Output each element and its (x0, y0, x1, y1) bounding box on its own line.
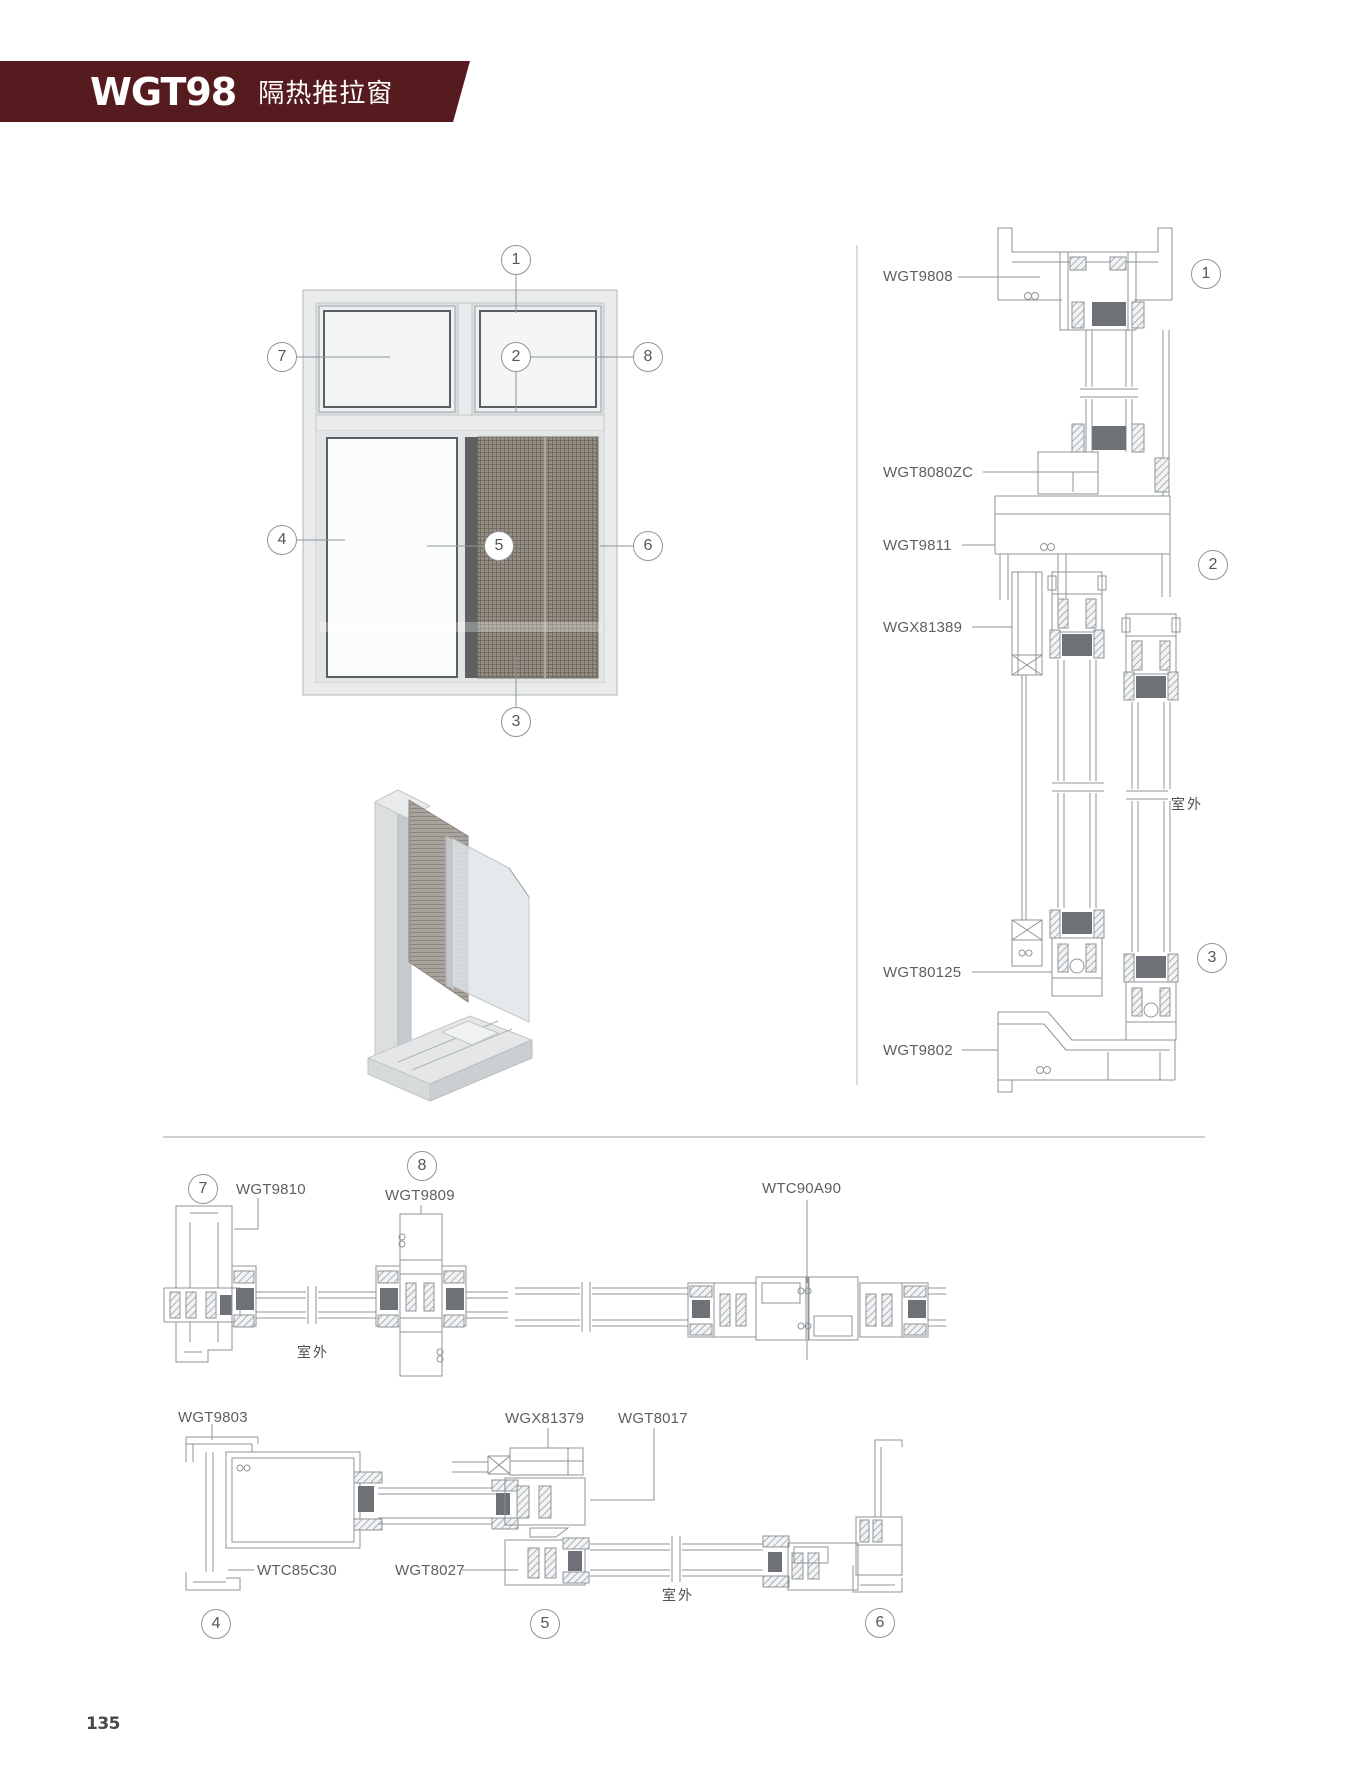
part-label-wgt8080zc: WGT8080ZC (883, 464, 973, 482)
elevation-callout-7: 7 (267, 342, 297, 372)
window-elevation (297, 275, 633, 707)
outdoor-label-row2: 室外 (662, 1587, 694, 1603)
technical-drawing (0, 0, 1359, 1770)
profile-3d-render (368, 790, 532, 1101)
row1-left-section (164, 1198, 508, 1376)
vertical-callout-3: 3 (1197, 943, 1227, 973)
part-label-wgt8027: WGT8027 (395, 1562, 465, 1580)
outdoor-label-row1: 室外 (297, 1344, 329, 1360)
part-label-wtc85c30: WTC85C30 (257, 1562, 337, 1580)
elevation-callout-1: 1 (501, 245, 531, 275)
part-label-wgt80125: WGT80125 (883, 964, 961, 982)
part-label-wgt9802: WGT9802 (883, 1042, 953, 1060)
elevation-callout-8: 8 (633, 342, 663, 372)
row1-callout-7: 7 (188, 1174, 218, 1204)
part-label-wgx81389: WGX81389 (883, 619, 962, 637)
outdoor-label-vertical: 室外 (1171, 796, 1203, 812)
row2-callout-4: 4 (201, 1609, 231, 1639)
part-label-wgt9810: WGT9810 (236, 1181, 306, 1199)
part-label-wtc90a90: WTC90A90 (762, 1180, 841, 1198)
elevation-callout-2: 2 (501, 342, 531, 372)
row1-right-section (515, 1200, 946, 1360)
vertical-section (857, 228, 1180, 1092)
part-label-wgt9803: WGT9803 (178, 1409, 248, 1427)
row2-callout-6: 6 (865, 1608, 895, 1638)
catalog-page: WGT98 隔热推拉窗 (0, 0, 1359, 1770)
elevation-callout-5: 5 (484, 531, 514, 561)
page-number: 135 (86, 1714, 120, 1734)
part-label-wgt8017: WGT8017 (618, 1410, 688, 1428)
elevation-callout-4: 4 (267, 525, 297, 555)
vertical-callout-2: 2 (1198, 550, 1228, 580)
part-label-wgt9809: WGT9809 (385, 1187, 455, 1205)
part-label-wgt9811: WGT9811 (883, 537, 952, 555)
row2-callout-5: 5 (530, 1609, 560, 1639)
row1-callout-8: 8 (407, 1151, 437, 1181)
part-label-wgt9808: WGT9808 (883, 268, 953, 286)
elevation-callout-3: 3 (501, 707, 531, 737)
elevation-callout-6: 6 (633, 531, 663, 561)
part-label-wgx81379: WGX81379 (505, 1410, 584, 1428)
vertical-callout-1: 1 (1191, 259, 1221, 289)
